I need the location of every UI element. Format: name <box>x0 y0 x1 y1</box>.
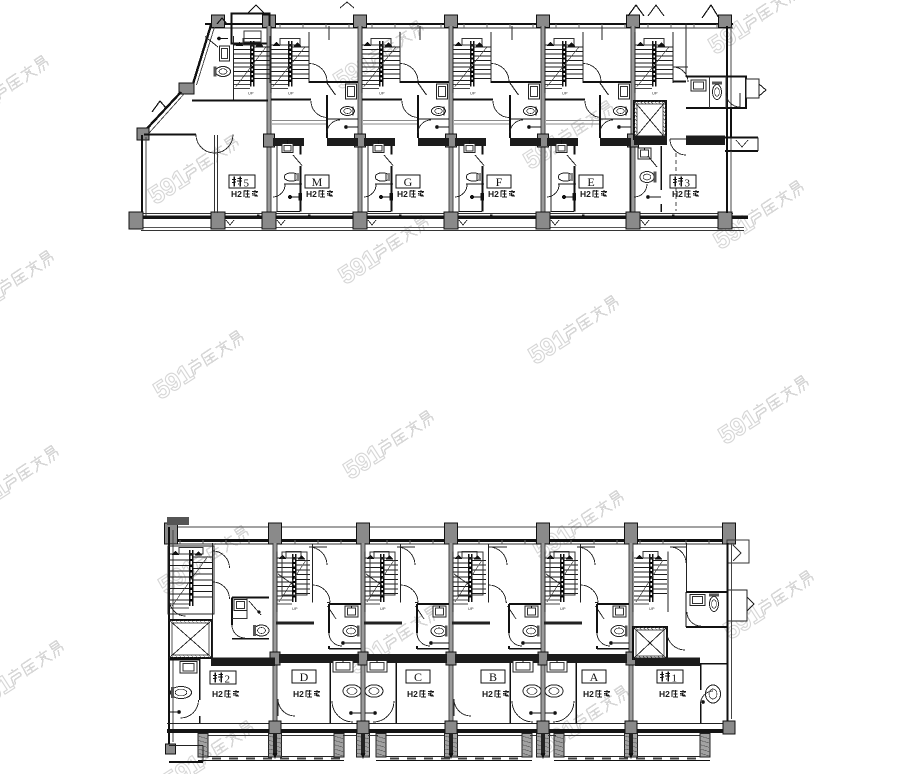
svg-text:5: 5 <box>244 178 250 190</box>
svg-text:UP: UP <box>470 91 476 96</box>
svg-text:1: 1 <box>672 673 678 685</box>
svg-text:H2: H2 <box>482 689 493 699</box>
svg-text:UP: UP <box>292 606 298 611</box>
svg-text:H2: H2 <box>231 189 242 199</box>
svg-text:UP: UP <box>562 91 568 96</box>
svg-text:UP: UP <box>248 91 254 96</box>
svg-text:H2: H2 <box>212 689 223 699</box>
svg-text:2: 2 <box>225 674 231 686</box>
svg-text:UP: UP <box>468 606 474 611</box>
svg-text:H2: H2 <box>293 689 304 699</box>
svg-text:H2: H2 <box>580 189 591 199</box>
svg-text:UP: UP <box>652 91 658 96</box>
svg-text:UP: UP <box>380 606 386 611</box>
svg-text:UP: UP <box>379 91 385 96</box>
svg-text:H2: H2 <box>583 689 594 699</box>
svg-text:3: 3 <box>685 178 691 190</box>
svg-text:H2: H2 <box>659 689 670 699</box>
svg-text:UP: UP <box>560 606 566 611</box>
svg-text:M: M <box>312 175 323 189</box>
svg-text:H2: H2 <box>407 689 418 699</box>
svg-text:E: E <box>587 175 594 189</box>
svg-text:F: F <box>496 175 503 189</box>
svg-text:H2: H2 <box>488 189 499 199</box>
svg-text:H2: H2 <box>306 189 317 199</box>
svg-text:B: B <box>489 670 497 684</box>
svg-text:D: D <box>300 670 309 684</box>
svg-text:H2: H2 <box>672 189 683 199</box>
svg-text:H2: H2 <box>397 189 408 199</box>
svg-text:A: A <box>590 670 599 684</box>
svg-text:UP: UP <box>288 91 294 96</box>
svg-text:UP: UP <box>649 606 655 611</box>
svg-text:C: C <box>414 670 422 684</box>
svg-text:G: G <box>404 175 413 189</box>
